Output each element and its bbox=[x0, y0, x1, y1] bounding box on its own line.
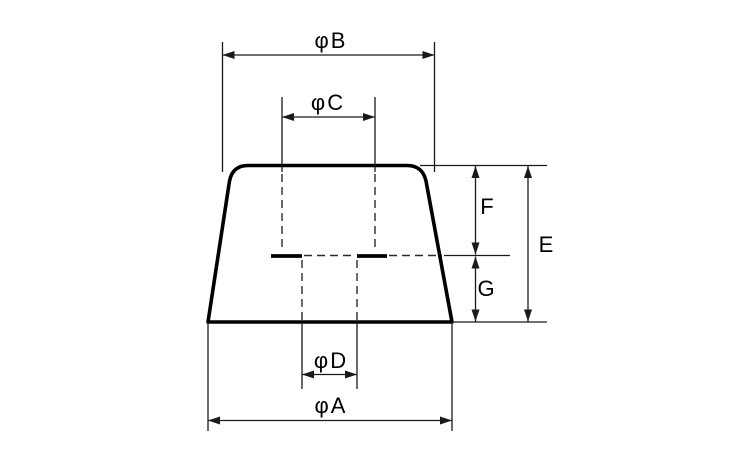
dimension-drawing: φB φC F E G φD φA bbox=[0, 0, 750, 450]
dim-label-g: G bbox=[477, 276, 496, 301]
dim-label-e: E bbox=[539, 232, 556, 257]
dim-label-f: F bbox=[480, 194, 495, 219]
dim-label-phi-d: φD bbox=[314, 348, 348, 373]
dim-label-phi-c: φC bbox=[311, 90, 345, 115]
part-outline bbox=[208, 166, 452, 323]
dim-label-phi-a: φA bbox=[315, 393, 348, 418]
dimension-drawing-svg: φB φC F E G φD φA bbox=[0, 0, 750, 450]
dim-label-phi-b: φB bbox=[315, 28, 348, 53]
